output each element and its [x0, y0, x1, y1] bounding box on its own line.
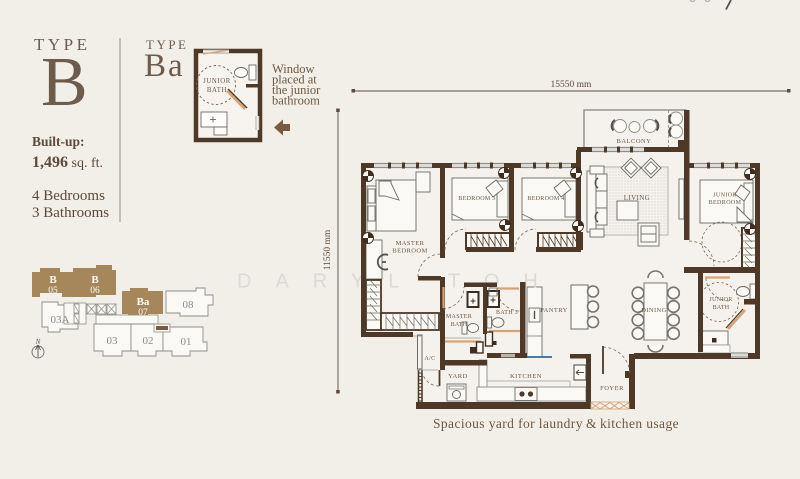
- svg-text:BALCONY: BALCONY: [617, 138, 652, 145]
- svg-text:Built-up:: Built-up:: [32, 134, 85, 149]
- svg-text:01: 01: [181, 336, 192, 348]
- svg-text:3 Bathrooms: 3 Bathrooms: [32, 205, 109, 221]
- svg-text:B: B: [91, 274, 99, 286]
- svg-text:02: 02: [143, 335, 154, 347]
- svg-text:B: B: [41, 44, 88, 121]
- svg-text:JUNIOR: JUNIOR: [203, 78, 231, 85]
- svg-text:BATH: BATH: [451, 322, 468, 328]
- svg-text:BATH 3: BATH 3: [496, 310, 518, 316]
- svg-text:BEDROOM: BEDROOM: [392, 248, 427, 255]
- svg-text:Spacious yard for laundry & ki: Spacious yard for laundry & kitchen usag…: [433, 416, 679, 431]
- svg-text:LIVING: LIVING: [624, 195, 650, 202]
- svg-text:BEDROOM: BEDROOM: [709, 200, 742, 206]
- svg-text:PANTRY: PANTRY: [540, 307, 567, 314]
- svg-text:MASTER: MASTER: [396, 240, 425, 247]
- svg-text:B: B: [49, 274, 57, 286]
- svg-text:MASTER: MASTER: [446, 314, 472, 320]
- svg-text:11550 mm: 11550 mm: [323, 229, 333, 270]
- svg-text:DARYL: DARYL: [237, 271, 423, 293]
- svg-text:1,496 sq. ft.: 1,496 sq. ft.: [32, 154, 103, 171]
- svg-text:JUNIOR: JUNIOR: [713, 193, 737, 199]
- svg-text:BEDROOM 4: BEDROOM 4: [527, 196, 564, 202]
- svg-text:A/C: A/C: [424, 355, 435, 362]
- svg-text:BATH: BATH: [207, 87, 227, 94]
- svg-text:FOYER: FOYER: [600, 385, 624, 392]
- svg-text:JUNIOR: JUNIOR: [709, 297, 732, 303]
- svg-text:Ba: Ba: [144, 48, 185, 84]
- svg-text:07: 07: [138, 308, 148, 318]
- svg-text:03A: 03A: [51, 314, 70, 326]
- svg-text:N: N: [35, 338, 41, 346]
- svg-text:Ba: Ba: [137, 296, 150, 308]
- svg-text:BATH: BATH: [713, 305, 730, 311]
- svg-text:08: 08: [183, 299, 195, 311]
- svg-text:4 Bedrooms: 4 Bedrooms: [32, 188, 105, 204]
- svg-text:05: 05: [48, 286, 58, 296]
- svg-text:15550 mm: 15550 mm: [551, 80, 593, 90]
- svg-text:YARD: YARD: [448, 373, 468, 380]
- svg-text:06: 06: [90, 286, 100, 296]
- svg-text:KITCHEN: KITCHEN: [510, 373, 542, 380]
- svg-text:bathroom: bathroom: [272, 94, 320, 108]
- svg-text:BEDROOM 3: BEDROOM 3: [458, 196, 495, 202]
- svg-text:03: 03: [107, 335, 119, 347]
- svg-text:DINING: DINING: [641, 307, 667, 314]
